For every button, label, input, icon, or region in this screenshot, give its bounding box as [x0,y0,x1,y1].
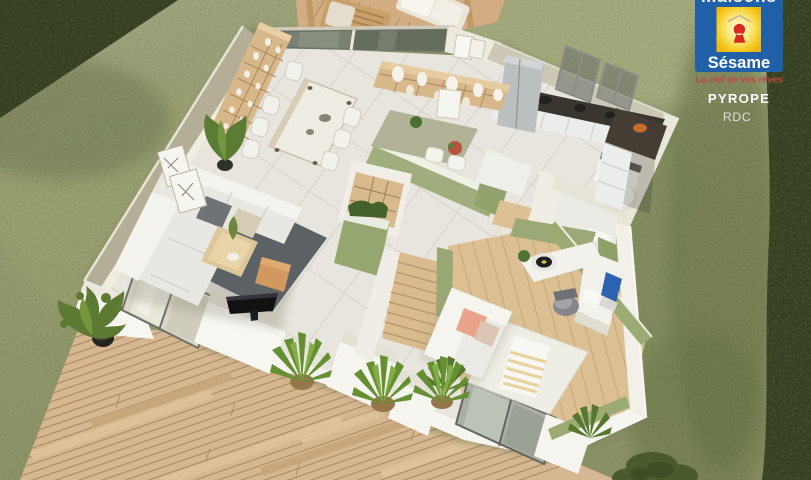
svg-text:Sésame: Sésame [708,54,770,72]
svg-text:PYROPE: PYROPE [708,91,770,106]
svg-text:RDC: RDC [723,110,751,124]
svg-text:maisons: maisons [701,0,777,6]
svg-text:La clef de vos rêves: La clef de vos rêves [695,75,782,86]
